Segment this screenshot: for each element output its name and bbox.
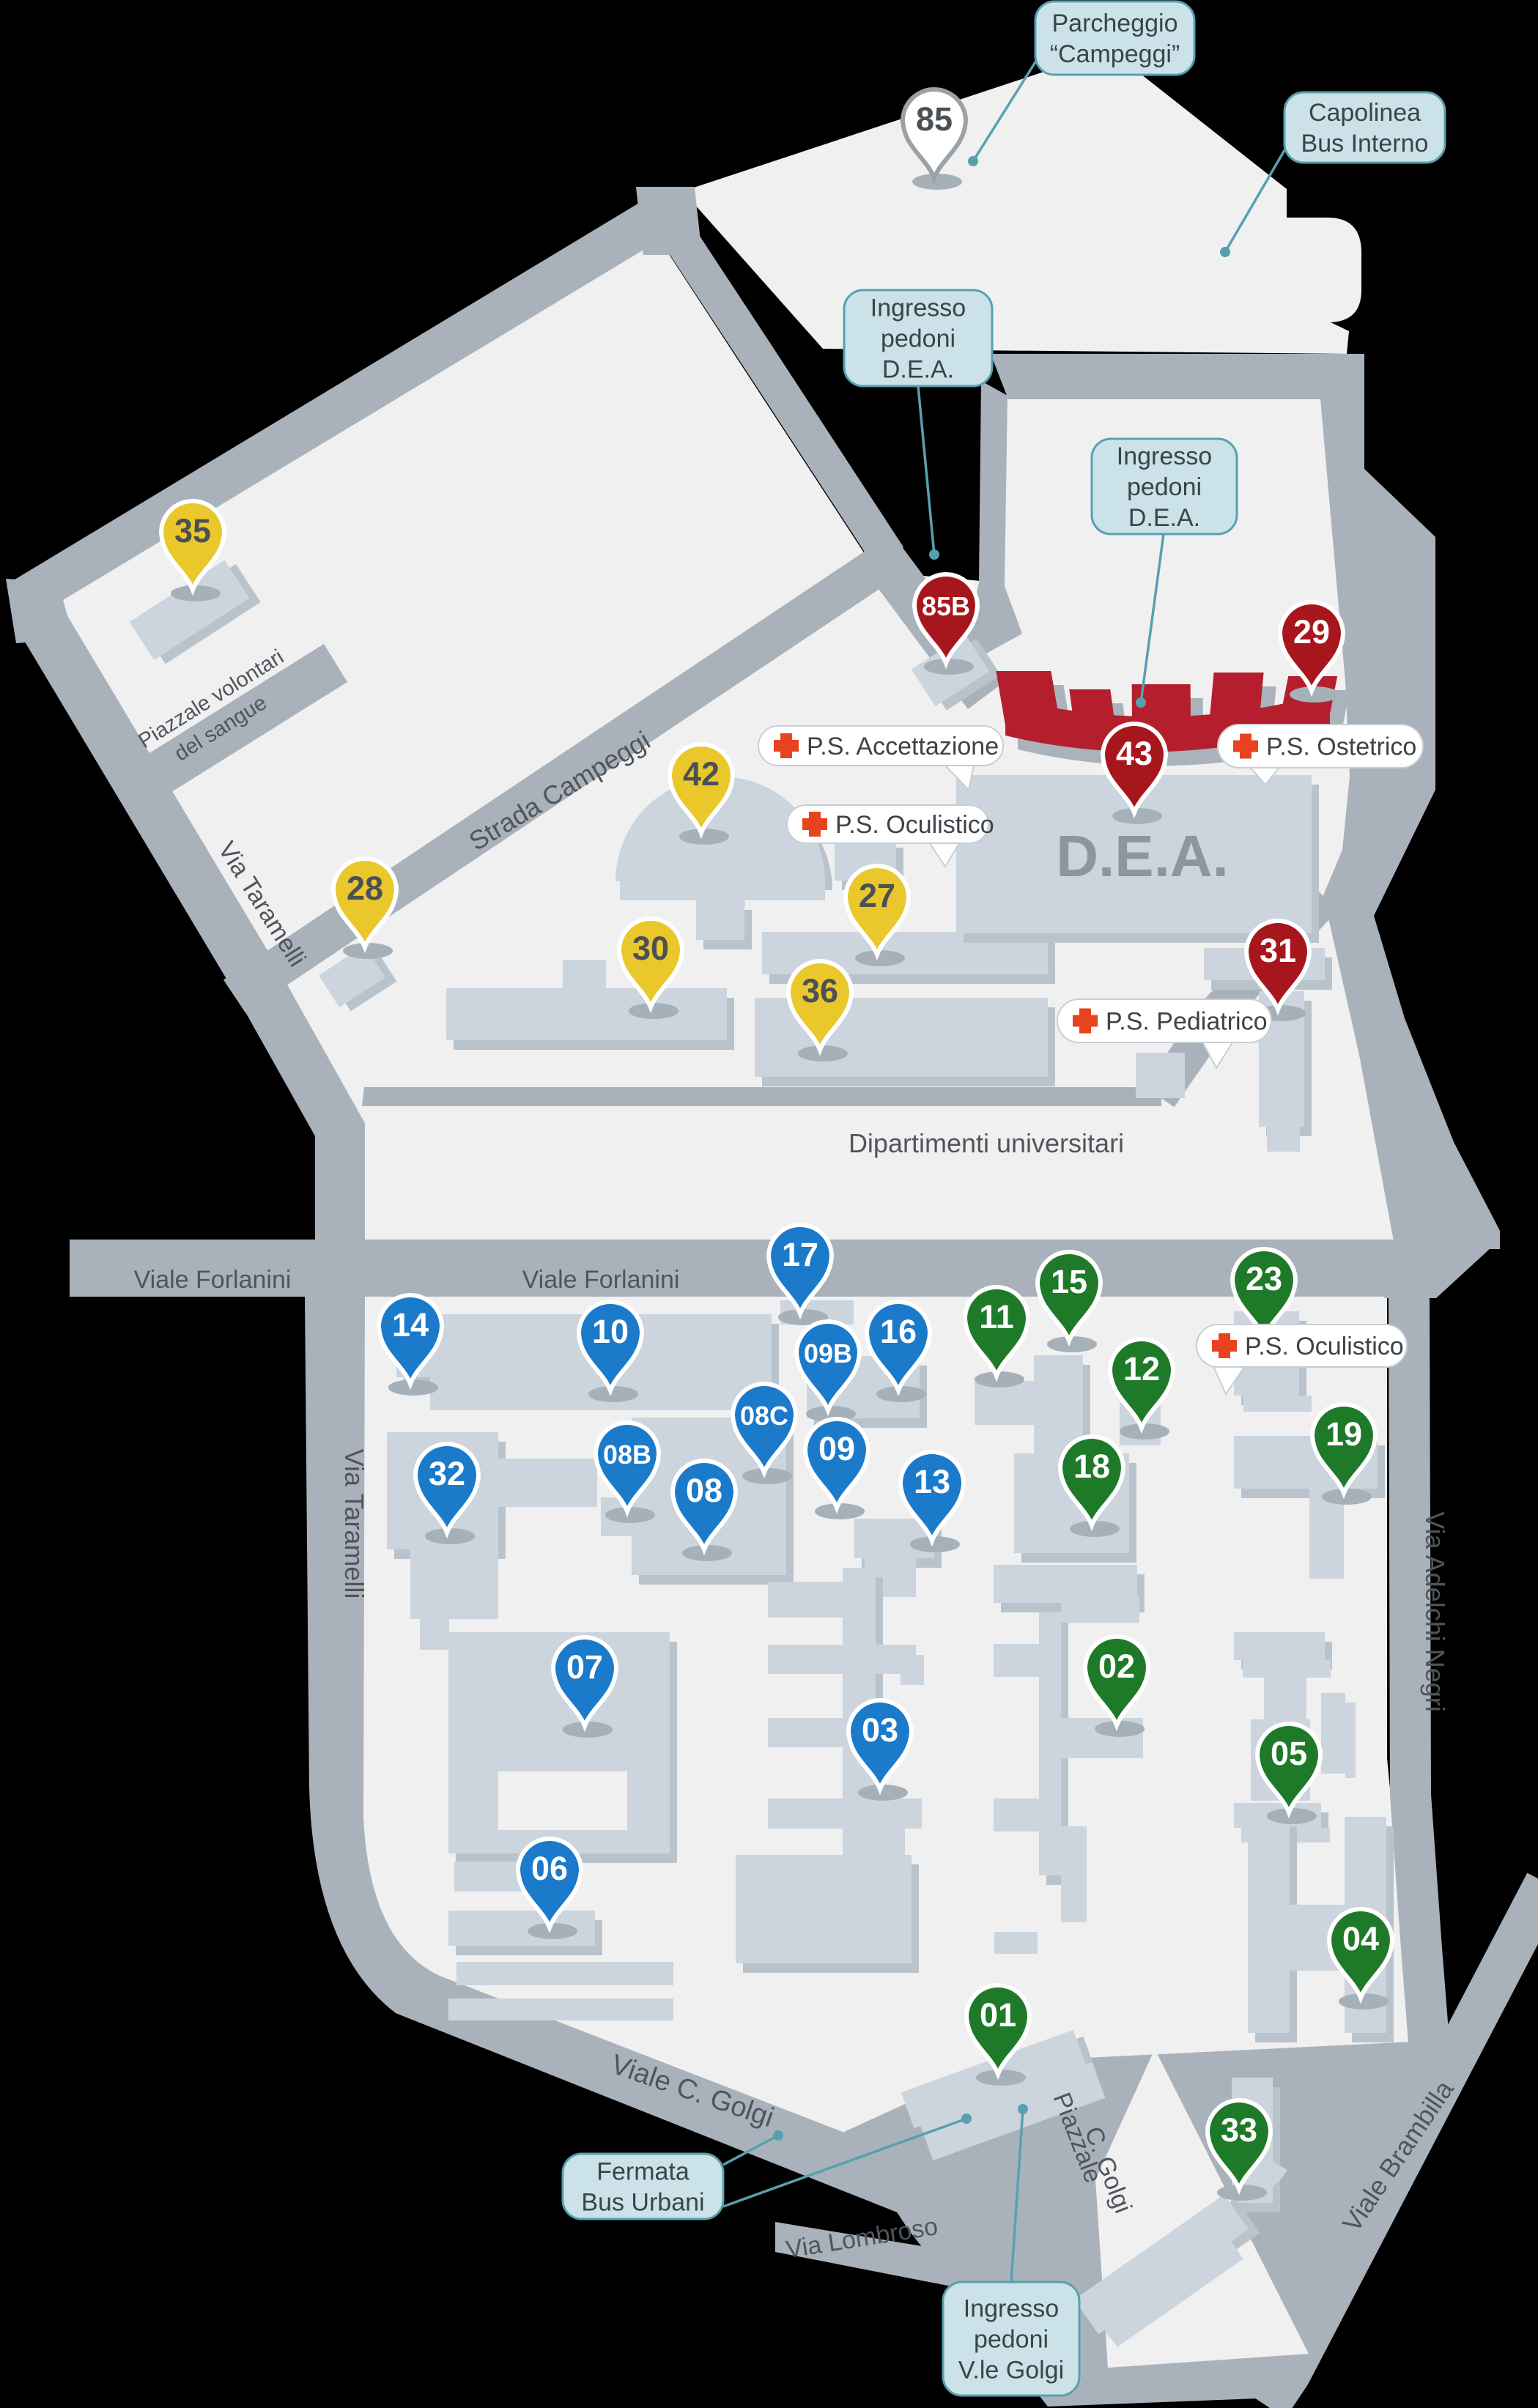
svg-text:15: 15 xyxy=(1051,1263,1087,1300)
svg-text:85B: 85B xyxy=(922,591,970,621)
svg-text:D.E.A.: D.E.A. xyxy=(1056,823,1229,889)
svg-text:07: 07 xyxy=(566,1648,603,1686)
svg-text:pedoni: pedoni xyxy=(881,325,955,353)
svg-text:06: 06 xyxy=(531,1850,568,1887)
svg-text:V.le Golgi: V.le Golgi xyxy=(958,2357,1064,2385)
svg-text:pedoni: pedoni xyxy=(1127,473,1202,501)
svg-text:30: 30 xyxy=(632,930,669,967)
svg-text:09: 09 xyxy=(818,1430,855,1467)
svg-text:09B: 09B xyxy=(804,1338,852,1368)
svg-text:P.S. Accettazione: P.S. Accettazione xyxy=(807,733,999,760)
svg-text:08: 08 xyxy=(686,1472,722,1509)
svg-text:13: 13 xyxy=(914,1463,950,1500)
svg-text:23: 23 xyxy=(1246,1260,1282,1297)
svg-text:Viale Forlanini: Viale Forlanini xyxy=(522,1266,680,1294)
svg-text:27: 27 xyxy=(859,877,895,914)
svg-text:29: 29 xyxy=(1293,613,1330,651)
svg-text:19: 19 xyxy=(1326,1415,1362,1453)
svg-text:10: 10 xyxy=(592,1313,629,1350)
svg-text:12: 12 xyxy=(1123,1350,1160,1388)
svg-text:42: 42 xyxy=(683,755,720,793)
svg-text:28: 28 xyxy=(347,870,383,907)
svg-text:D.E.A.: D.E.A. xyxy=(882,356,954,384)
svg-text:“Campeggi”: “Campeggi” xyxy=(1050,40,1180,68)
svg-text:P.S. Oculistico: P.S. Oculistico xyxy=(835,811,994,839)
svg-text:08B: 08B xyxy=(603,1440,651,1470)
svg-text:P.S. Oculistico: P.S. Oculistico xyxy=(1245,1333,1404,1360)
svg-text:31: 31 xyxy=(1260,932,1296,969)
svg-text:Ingresso: Ingresso xyxy=(1117,442,1212,470)
svg-text:D.E.A.: D.E.A. xyxy=(1128,504,1200,532)
svg-text:43: 43 xyxy=(1116,735,1153,772)
svg-text:85: 85 xyxy=(916,100,953,138)
svg-text:04: 04 xyxy=(1342,1920,1379,1957)
svg-text:05: 05 xyxy=(1271,1735,1307,1772)
svg-text:08C: 08C xyxy=(740,1401,788,1431)
svg-text:Fermata: Fermata xyxy=(596,2158,689,2186)
svg-text:33: 33 xyxy=(1221,2111,1257,2149)
svg-text:Bus Urbani: Bus Urbani xyxy=(581,2189,704,2217)
svg-text:16: 16 xyxy=(880,1313,917,1350)
svg-text:11: 11 xyxy=(979,1298,1014,1335)
svg-text:P.S. Ostetrico: P.S. Ostetrico xyxy=(1266,733,1416,761)
svg-text:Bus Interno: Bus Interno xyxy=(1301,130,1429,158)
svg-text:32: 32 xyxy=(429,1455,465,1492)
svg-text:03: 03 xyxy=(862,1711,898,1749)
svg-text:pedoni: pedoni xyxy=(974,2326,1049,2354)
svg-text:14: 14 xyxy=(392,1306,429,1344)
svg-text:01: 01 xyxy=(980,1996,1016,2034)
svg-text:Parcheggio: Parcheggio xyxy=(1051,10,1177,37)
svg-text:Viale Forlanini: Viale Forlanini xyxy=(134,1266,292,1294)
svg-text:02: 02 xyxy=(1098,1648,1135,1685)
svg-text:Ingresso: Ingresso xyxy=(964,2295,1059,2323)
svg-text:35: 35 xyxy=(174,512,211,549)
svg-text:36: 36 xyxy=(802,972,838,1009)
svg-text:Capolinea: Capolinea xyxy=(1309,99,1421,127)
svg-text:Dipartimenti universitari: Dipartimenti universitari xyxy=(849,1128,1124,1158)
svg-text:Via Adelchi Negri: Via Adelchi Negri xyxy=(1420,1511,1450,1712)
svg-text:17: 17 xyxy=(782,1236,818,1273)
svg-text:P.S. Pediatrico: P.S. Pediatrico xyxy=(1106,1008,1268,1036)
svg-text:Via Taramelli: Via Taramelli xyxy=(339,1449,369,1599)
svg-text:18: 18 xyxy=(1073,1448,1110,1485)
svg-text:Ingresso: Ingresso xyxy=(870,294,966,322)
